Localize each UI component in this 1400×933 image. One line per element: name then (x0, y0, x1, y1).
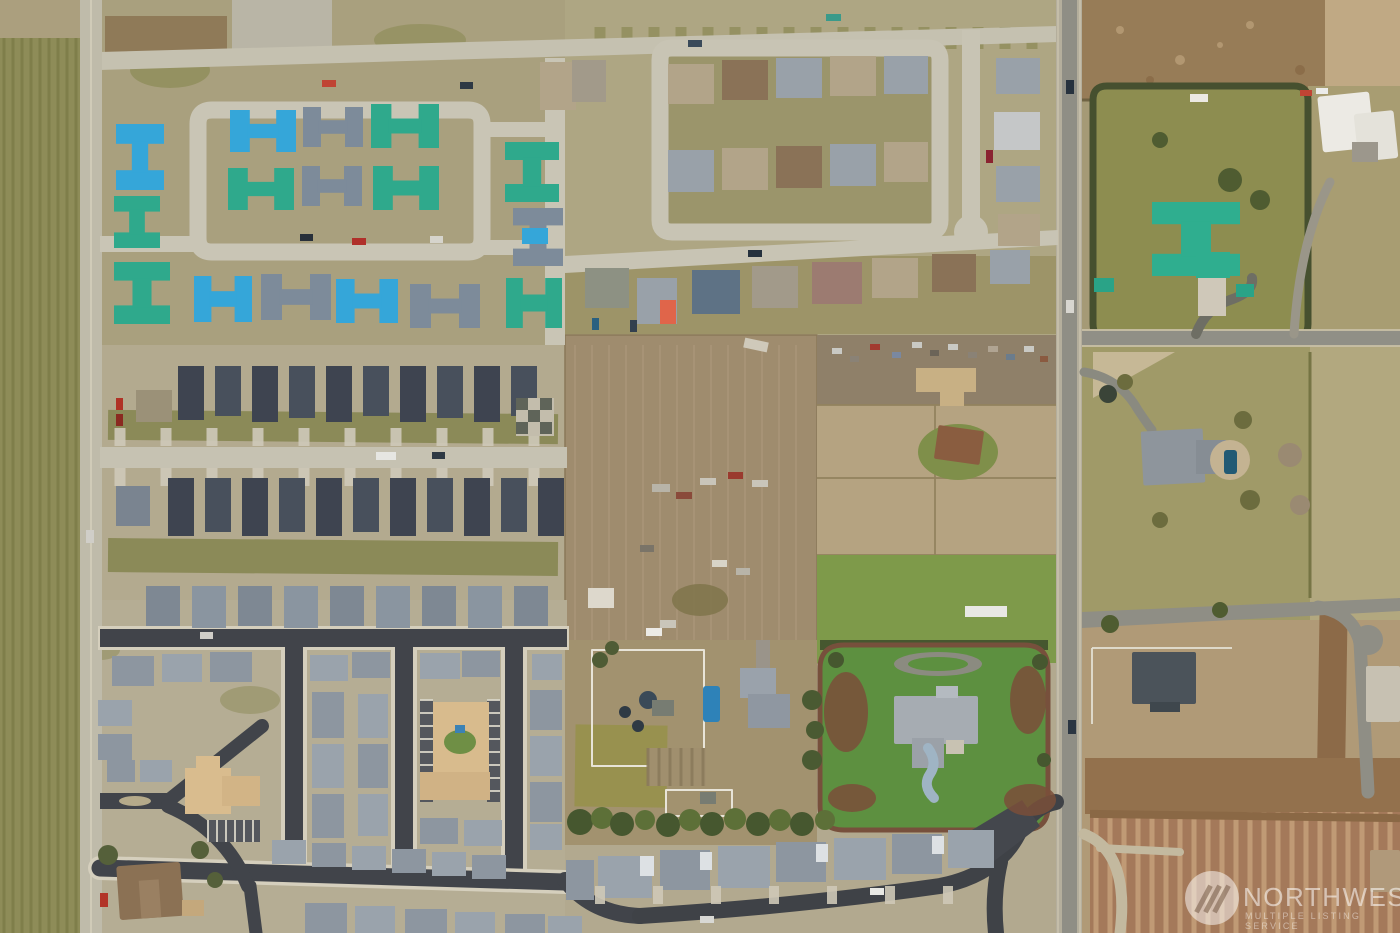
vehicle (322, 80, 336, 87)
house-roof (182, 900, 204, 916)
asphalt-street (250, 886, 256, 933)
house-roof (474, 366, 500, 422)
house-roof (400, 366, 426, 422)
vehicle (200, 632, 213, 639)
house-roof (668, 64, 714, 104)
paved-road (1100, 848, 1180, 852)
tree (724, 808, 746, 830)
asphalt-street (119, 796, 151, 806)
house-roof (178, 366, 204, 420)
debris (640, 545, 654, 552)
house-roof (1236, 284, 1254, 297)
house-roof (464, 478, 490, 536)
yard-feature (756, 640, 770, 668)
house-roof (432, 852, 466, 876)
debris (712, 560, 727, 567)
asphalt-street (100, 629, 567, 647)
house-roof (455, 912, 495, 933)
nwmls-logo-icon (1185, 871, 1239, 925)
debris (892, 352, 901, 358)
house-roof (1212, 602, 1228, 618)
yard-feature (828, 652, 844, 668)
house-roof (994, 112, 1040, 150)
tree (679, 809, 701, 831)
house-roof (514, 586, 548, 626)
house-roof (272, 840, 306, 864)
terrain-patch (817, 405, 1058, 555)
house-roof (1234, 411, 1252, 429)
house-roof (390, 478, 416, 536)
house-roof (566, 860, 594, 900)
yard-feature (632, 720, 644, 732)
house-roof (884, 56, 928, 94)
house-roof (464, 820, 502, 846)
terrain-patch (0, 0, 80, 38)
house-roof (932, 254, 976, 292)
house-roof (1250, 190, 1270, 210)
debris (1024, 346, 1034, 352)
house-roof (279, 478, 305, 532)
tree (567, 809, 593, 835)
house-roof (998, 214, 1040, 246)
house-roof (572, 60, 606, 102)
yard-feature (703, 686, 720, 722)
house-roof (472, 855, 506, 879)
house-roof (948, 830, 994, 868)
debris (912, 342, 922, 348)
house-roof (242, 478, 268, 536)
house-roof (1132, 652, 1196, 704)
house-roof (353, 478, 379, 532)
terrain-patch (1325, 0, 1400, 92)
house-roof (312, 744, 344, 788)
house-roof (358, 794, 388, 836)
terrain-patch (1217, 42, 1223, 48)
house-roof (530, 824, 562, 850)
house-roof (722, 60, 768, 100)
debris (652, 484, 670, 492)
house-roof (1198, 278, 1226, 316)
house-roof (1101, 615, 1119, 633)
house-roof (392, 849, 426, 873)
house-roof (996, 166, 1040, 202)
house-roof (540, 398, 552, 410)
house-roof (516, 422, 528, 434)
yard-feature (1004, 784, 1056, 816)
house-roof (540, 62, 576, 110)
house-roof (116, 414, 123, 426)
house-roof (420, 818, 458, 844)
house-roof (692, 270, 740, 314)
house-roof (420, 653, 460, 679)
yard-feature (824, 672, 868, 752)
house-roof (540, 422, 552, 434)
house-roof (884, 142, 928, 182)
debris (832, 348, 842, 354)
paved-road (1099, 385, 1117, 403)
house-roof (1278, 443, 1302, 467)
house-roof (501, 478, 527, 532)
paved-road (1082, 330, 1400, 346)
house-roof (528, 410, 540, 422)
terrain-patch (1295, 65, 1305, 75)
house-roof (358, 744, 388, 788)
house-roof (312, 692, 344, 738)
house-roof (100, 893, 108, 907)
house-roof (437, 366, 463, 418)
yard-feature (806, 721, 824, 739)
house-roof (932, 836, 944, 854)
terrain-patch (108, 538, 558, 576)
yard-feature (908, 657, 968, 671)
house-roof (990, 250, 1030, 284)
vehicle (688, 40, 702, 47)
house-roof (326, 366, 352, 422)
vehicle (986, 150, 993, 163)
house-roof (530, 782, 562, 822)
tree (656, 813, 680, 837)
house-roof (834, 838, 886, 880)
terrain-patch (1310, 345, 1400, 620)
house-roof (312, 843, 346, 867)
debris (660, 620, 676, 628)
debris (870, 344, 880, 350)
house-roof (1150, 702, 1180, 712)
house-roof (548, 916, 582, 933)
yard-feature (1037, 753, 1051, 767)
terrain-patch (1175, 55, 1185, 65)
debris (948, 344, 958, 350)
debris (752, 480, 768, 487)
house-roof (352, 652, 390, 678)
vehicle (432, 452, 445, 459)
house-roof (427, 478, 453, 532)
tree (700, 812, 724, 836)
vehicle (86, 530, 94, 543)
house-roof (668, 150, 714, 192)
yard-feature (802, 690, 822, 710)
house-roof (752, 266, 798, 308)
house-roof (532, 654, 562, 680)
debris (934, 425, 984, 465)
vehicle (700, 916, 714, 923)
house-roof (1290, 495, 1310, 515)
tree (746, 812, 770, 836)
house-roof (355, 906, 395, 933)
yard-feature (802, 750, 822, 770)
house-roof (700, 852, 712, 870)
vehicle (592, 318, 599, 330)
yard-feature (936, 686, 958, 698)
house-roof (1190, 94, 1208, 102)
vehicle (300, 234, 313, 241)
house-roof (207, 872, 223, 888)
house-roof (1152, 132, 1168, 148)
debris (968, 352, 977, 358)
house-roof (98, 700, 132, 726)
house-roof (405, 909, 447, 933)
house-roof (238, 586, 272, 626)
terrain-patch (232, 0, 332, 52)
house-roof (1152, 512, 1168, 528)
house-roof (116, 398, 123, 410)
vehicle (352, 238, 366, 245)
terrain-patch (220, 686, 280, 714)
terrain-patch (1085, 758, 1400, 814)
house-roof (112, 656, 154, 686)
house-roof (776, 58, 822, 98)
debris (728, 472, 743, 479)
yard-feature (592, 652, 608, 668)
vehicle (870, 888, 884, 895)
house-roof (444, 730, 476, 754)
tree (769, 809, 791, 831)
vehicle (376, 452, 396, 460)
yard-feature (740, 668, 776, 698)
debris (736, 568, 750, 575)
tree (610, 812, 634, 836)
watermark-subtitle: MULTIPLE LISTING SERVICE (1245, 911, 1400, 931)
house-roof (455, 725, 465, 733)
house-roof (107, 760, 135, 782)
yard-feature (946, 740, 964, 754)
vehicle (460, 82, 473, 89)
tree (591, 807, 613, 829)
house-roof (330, 586, 364, 626)
house-roof (305, 903, 347, 933)
house-roof (660, 300, 676, 324)
house-roof (996, 58, 1040, 94)
yard-feature (652, 700, 674, 716)
tree (635, 810, 655, 830)
watermark-title: NORTHWEST (1243, 882, 1400, 913)
house-roof (1196, 252, 1230, 278)
house-roof (210, 652, 252, 682)
vehicle (430, 236, 443, 243)
house-roof (98, 734, 132, 760)
yard-feature (1032, 654, 1048, 670)
house-roof (1366, 666, 1400, 722)
debris (965, 606, 1007, 617)
house-roof (352, 846, 386, 870)
house-roof (830, 144, 876, 186)
yard-feature (619, 706, 631, 718)
house-roof (139, 879, 162, 918)
house-roof (222, 776, 260, 806)
house-roof (462, 651, 500, 677)
house-roof (1352, 142, 1378, 162)
house-roof (585, 268, 629, 308)
house-roof (168, 478, 194, 536)
house-roof (640, 856, 654, 876)
yard-feature (927, 748, 934, 798)
house-roof (146, 586, 180, 626)
house-roof (191, 841, 209, 859)
house-roof (516, 398, 528, 410)
house-roof (205, 478, 231, 532)
house-roof (284, 586, 318, 628)
yard-feature (605, 641, 619, 655)
apartment-building (522, 228, 548, 244)
asphalt-street (395, 647, 413, 875)
terrain-patch (1246, 21, 1254, 29)
house-roof (196, 756, 220, 770)
house-roof (1300, 90, 1312, 96)
house-roof (316, 478, 342, 536)
tree (815, 810, 835, 830)
house-roof (252, 366, 278, 422)
asphalt-street (505, 647, 523, 875)
house-roof (310, 655, 348, 681)
vehicle (826, 14, 841, 21)
paved-road (100, 447, 567, 468)
asphalt-street (995, 862, 1000, 933)
debris (588, 588, 614, 608)
debris (930, 350, 939, 356)
house-roof (1117, 374, 1133, 390)
yard-feature (700, 792, 716, 804)
debris (940, 368, 964, 406)
house-roof (872, 258, 918, 298)
vehicle (1066, 300, 1074, 313)
house-roof (376, 586, 410, 628)
yard-feature (748, 694, 790, 728)
house-roof (1316, 88, 1328, 94)
debris (700, 478, 716, 485)
yard-feature (648, 748, 706, 786)
house-roof (505, 914, 545, 933)
vehicle (1066, 80, 1074, 94)
house-roof (538, 478, 564, 536)
house-roof (468, 586, 502, 628)
house-roof (776, 146, 822, 188)
house-roof (140, 760, 172, 782)
house-roof (1141, 428, 1206, 485)
paved-road (962, 30, 980, 232)
house-roof (830, 56, 876, 96)
vehicle (630, 320, 637, 332)
house-roof (530, 736, 562, 776)
terrain-patch (1116, 26, 1124, 34)
house-roof (358, 694, 388, 738)
house-roof (98, 845, 118, 865)
house-roof (718, 846, 770, 888)
yard-feature (828, 784, 876, 812)
yard-feature (646, 628, 662, 636)
house-roof (1094, 278, 1114, 292)
house-roof (192, 586, 226, 628)
house-roof (312, 794, 344, 838)
debris (1006, 354, 1015, 360)
debris (850, 356, 859, 362)
vehicle (1068, 720, 1076, 734)
paved-road (482, 122, 548, 137)
debris (1040, 356, 1048, 362)
house-roof (530, 690, 562, 730)
debris (672, 584, 728, 616)
house-roof (420, 772, 490, 800)
house-roof (363, 366, 389, 416)
house-roof (116, 486, 150, 526)
house-roof (1218, 168, 1242, 192)
house-roof (162, 654, 202, 682)
house-roof (289, 366, 315, 418)
house-roof (215, 366, 241, 416)
debris (988, 346, 998, 352)
house-roof (722, 148, 768, 190)
tree (790, 812, 814, 836)
yard-feature (894, 696, 978, 744)
paved-road (1353, 625, 1383, 655)
paved-road (1062, 0, 1077, 933)
debris (676, 492, 692, 499)
house-roof (422, 586, 456, 626)
house-roof (812, 262, 862, 304)
house-roof (136, 390, 172, 422)
aerial-photo-canvas (0, 0, 1400, 933)
yard-feature (1010, 666, 1046, 734)
house-roof (816, 844, 828, 862)
house-roof (1224, 450, 1237, 474)
aerial-photo: NORTHWEST MULTIPLE LISTING SERVICE (0, 0, 1400, 933)
vehicle (748, 250, 762, 257)
house-roof (1240, 490, 1260, 510)
